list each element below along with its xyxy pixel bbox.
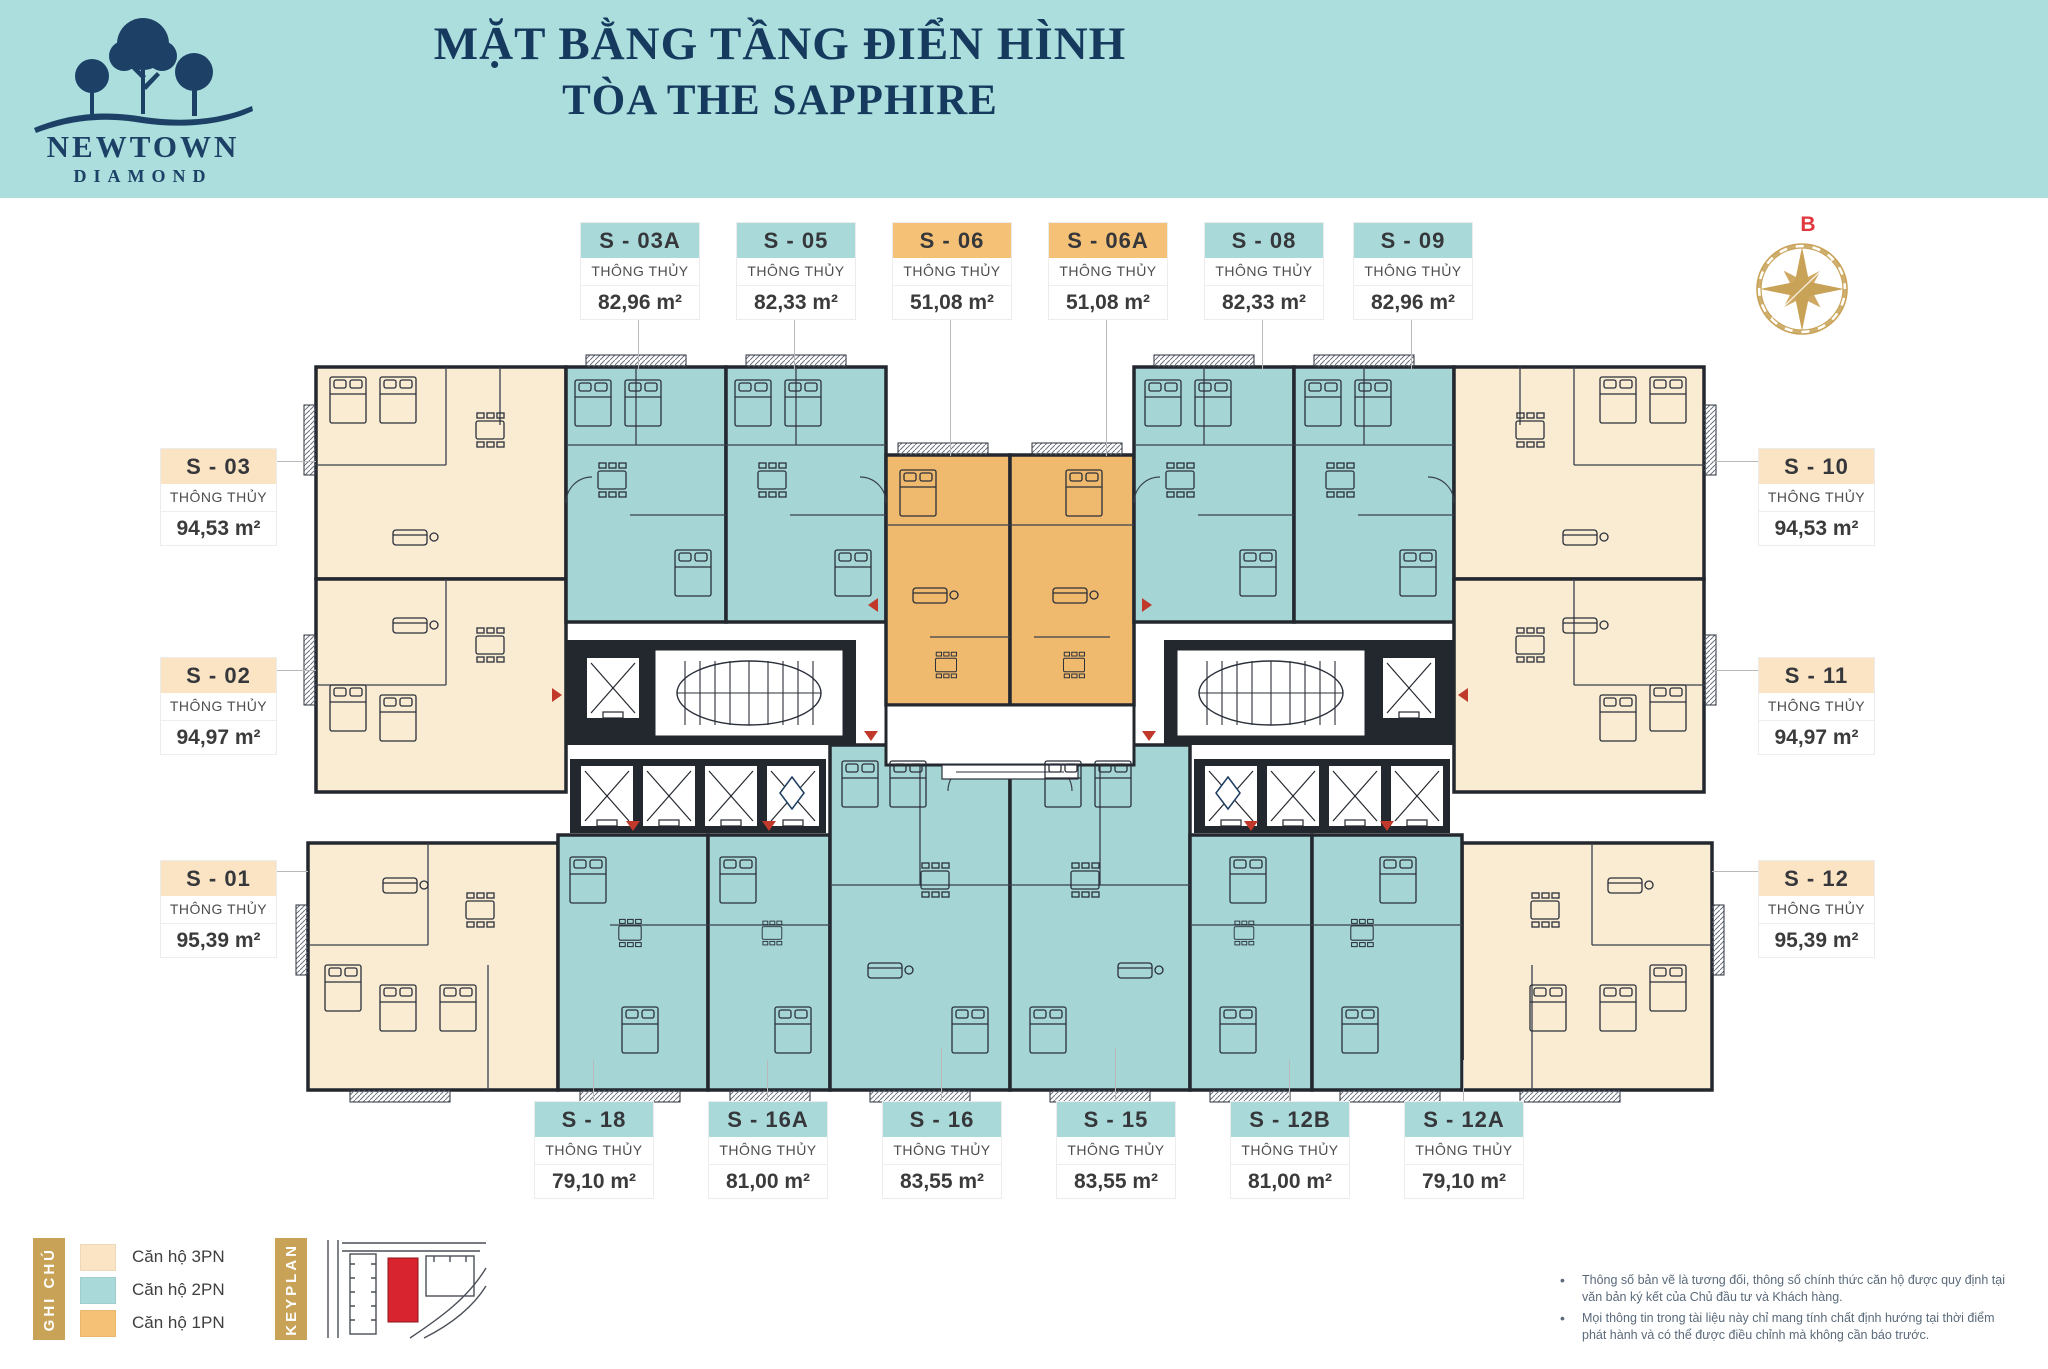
legend-title: GHI CHÚ [41, 1247, 58, 1331]
unit-area: 81,00 m² [1231, 1165, 1349, 1198]
unit-area-s05 [726, 367, 886, 622]
unit-area-s01 [308, 843, 558, 1090]
leader-line [1411, 320, 1412, 370]
title-line-2: TÒA THE SAPPHIRE [430, 74, 1130, 128]
legend-label-1pn: Căn hộ 1PN [132, 1313, 225, 1333]
unit-spec-label: THÔNG THỦY [1354, 258, 1472, 286]
legend-swatch-3pn [80, 1244, 116, 1271]
unit-id: S - 12B [1231, 1102, 1349, 1137]
unit-label-card: S - 03A THÔNG THỦY 82,96 m² [580, 222, 700, 320]
unit-id: S - 03 [161, 449, 276, 484]
unit-spec-label: THÔNG THỦY [161, 693, 276, 721]
keyplan-title-bar: KEYPLAN [275, 1238, 307, 1340]
keyplan-map [318, 1238, 490, 1340]
trees-icon [34, 18, 253, 133]
disclaimer-text-1: Thông số bản vẽ là tương đối, thông số c… [1582, 1272, 2012, 1306]
unit-area-s06 [886, 455, 1010, 705]
unit-spec-label: THÔNG THỦY [1759, 484, 1874, 512]
compass-north-label: B [1800, 213, 1815, 236]
unit-id: S - 12 [1759, 861, 1874, 896]
unit-id: S - 12A [1405, 1102, 1523, 1137]
bullet-icon: • [1560, 1272, 1582, 1306]
unit-label-card: S - 06 THÔNG THỦY 51,08 m² [892, 222, 1012, 320]
legend-swatch-1pn [80, 1310, 116, 1337]
unit-id: S - 05 [737, 223, 855, 258]
unit-area: 79,10 m² [535, 1165, 653, 1198]
bullet-icon: • [1560, 1310, 1582, 1344]
unit-area-s12 [1462, 843, 1712, 1090]
leader-line [1115, 1048, 1116, 1101]
left-core [566, 640, 856, 745]
unit-area: 94,53 m² [1759, 512, 1874, 545]
poster: NEWTOWN DIAMOND MẶT BẰNG TẦNG ĐIỂN HÌNH … [0, 0, 2048, 1369]
unit-id: S - 11 [1759, 658, 1874, 693]
legend-item-1pn: Căn hộ 1PN [80, 1310, 225, 1336]
disclaimer: • Thông số bản vẽ là tương đối, thông số… [1560, 1272, 2012, 1348]
unit-label-card: S - 02 THÔNG THỦY 94,97 m² [160, 657, 277, 755]
leader-line [1289, 1060, 1290, 1101]
unit-area: 51,08 m² [893, 286, 1011, 319]
unit-spec-label: THÔNG THỦY [1057, 1137, 1175, 1165]
unit-id: S - 15 [1057, 1102, 1175, 1137]
unit-id: S - 09 [1354, 223, 1472, 258]
unit-area: 82,96 m² [1354, 286, 1472, 319]
legend-swatch-2pn [80, 1277, 116, 1304]
unit-label-card: S - 03 THÔNG THỦY 94,53 m² [160, 448, 277, 546]
floor-plan [230, 265, 1790, 1115]
unit-area: 81,00 m² [709, 1165, 827, 1198]
unit-area-s06a [1010, 455, 1134, 705]
unit-area: 94,53 m² [161, 512, 276, 545]
right-core [1164, 640, 1454, 745]
unit-spec-label: THÔNG THỦY [737, 258, 855, 286]
unit-spec-label: THÔNG THỦY [161, 484, 276, 512]
unit-area-s08 [1134, 367, 1294, 622]
unit-label-card: S - 12 THÔNG THỦY 95,39 m² [1758, 860, 1875, 958]
unit-label-card: S - 12B THÔNG THỦY 81,00 m² [1230, 1101, 1350, 1199]
unit-id: S - 08 [1205, 223, 1323, 258]
unit-spec-label: THÔNG THỦY [535, 1137, 653, 1165]
leader-line [1106, 320, 1107, 456]
unit-area-s12a [1312, 835, 1462, 1090]
unit-label-card: S - 15 THÔNG THỦY 83,55 m² [1056, 1101, 1176, 1199]
unit-id: S - 18 [535, 1102, 653, 1137]
unit-label-card: S - 16 THÔNG THỦY 83,55 m² [882, 1101, 1002, 1199]
leader-line [638, 320, 639, 370]
unit-area-s16a [708, 835, 830, 1090]
unit-area: 83,55 m² [1057, 1165, 1175, 1198]
unit-id: S - 10 [1759, 449, 1874, 484]
brand-subname: DIAMOND [74, 166, 213, 186]
unit-label-card: S - 18 THÔNG THỦY 79,10 m² [534, 1101, 654, 1199]
unit-label-card: S - 12A THÔNG THỦY 79,10 m² [1404, 1101, 1524, 1199]
unit-label-card: S - 09 THÔNG THỦY 82,96 m² [1353, 222, 1473, 320]
leader-line [275, 670, 316, 671]
brand-logo: NEWTOWN DIAMOND [18, 4, 268, 192]
unit-area-s03a [566, 367, 726, 622]
unit-label-card: S - 11 THÔNG THỦY 94,97 m² [1758, 657, 1875, 755]
unit-area-s10 [1454, 367, 1704, 579]
unit-spec-label: THÔNG THỦY [893, 258, 1011, 286]
keyplan-highlighted-tower [388, 1258, 418, 1322]
unit-area: 51,08 m² [1049, 286, 1167, 319]
unit-id: S - 16 [883, 1102, 1001, 1137]
leader-line [275, 461, 316, 462]
unit-id: S - 16A [709, 1102, 827, 1137]
leader-line [941, 1048, 942, 1101]
unit-area: 82,33 m² [1205, 286, 1323, 319]
unit-id: S - 06A [1049, 223, 1167, 258]
unit-area: 94,97 m² [1759, 721, 1874, 754]
leader-line [593, 1060, 594, 1101]
unit-spec-label: THÔNG THỦY [1205, 258, 1323, 286]
unit-id: S - 01 [161, 861, 276, 896]
unit-label-card: S - 05 THÔNG THỦY 82,33 m² [736, 222, 856, 320]
unit-area: 95,39 m² [161, 924, 276, 957]
unit-label-card: S - 16A THÔNG THỦY 81,00 m² [708, 1101, 828, 1199]
leader-line [275, 871, 308, 872]
leader-line [950, 320, 951, 456]
unit-spec-label: THÔNG THỦY [161, 896, 276, 924]
legend-label-2pn: Căn hộ 2PN [132, 1280, 225, 1300]
disclaimer-item: • Thông số bản vẽ là tương đối, thông số… [1560, 1272, 2012, 1306]
page-title: MẶT BẰNG TẦNG ĐIỂN HÌNH TÒA THE SAPPHIRE [430, 16, 1130, 128]
leader-line [767, 1060, 768, 1101]
legend-title-bar: GHI CHÚ [33, 1238, 65, 1340]
leader-line [794, 320, 795, 370]
unit-area: 79,10 m² [1405, 1165, 1523, 1198]
unit-spec-label: THÔNG THỦY [709, 1137, 827, 1165]
disclaimer-text-2: Mọi thông tin trong tài liệu này chỉ man… [1582, 1310, 2012, 1344]
keyplan-title: KEYPLAN [283, 1243, 300, 1336]
legend-label-3pn: Căn hộ 3PN [132, 1247, 225, 1267]
disclaimer-item: • Mọi thông tin trong tài liệu này chỉ m… [1560, 1310, 2012, 1344]
unit-area-s12b [1190, 835, 1312, 1090]
unit-spec-label: THÔNG THỦY [883, 1137, 1001, 1165]
unit-label-card: S - 10 THÔNG THỦY 94,53 m² [1758, 448, 1875, 546]
unit-area-s03 [316, 367, 566, 579]
unit-area: 82,96 m² [581, 286, 699, 319]
unit-spec-label: THÔNG THỦY [581, 258, 699, 286]
unit-label-card: S - 06A THÔNG THỦY 51,08 m² [1048, 222, 1168, 320]
unit-label-card: S - 01 THÔNG THỦY 95,39 m² [160, 860, 277, 958]
brand-name: NEWTOWN [47, 129, 240, 164]
unit-spec-label: THÔNG THỦY [1759, 896, 1874, 924]
leader-line [1712, 670, 1758, 671]
legend-item-2pn: Căn hộ 2PN [80, 1277, 225, 1303]
unit-spec-label: THÔNG THỦY [1231, 1137, 1349, 1165]
unit-area: 83,55 m² [883, 1165, 1001, 1198]
title-line-1: MẶT BẰNG TẦNG ĐIỂN HÌNH [430, 16, 1130, 72]
leader-line [1712, 461, 1758, 462]
unit-spec-label: THÔNG THỦY [1759, 693, 1874, 721]
unit-area-s09 [1294, 367, 1454, 622]
unit-area-s18 [558, 835, 708, 1090]
unit-id: S - 06 [893, 223, 1011, 258]
unit-label-card: S - 08 THÔNG THỦY 82,33 m² [1204, 222, 1324, 320]
unit-area: 82,33 m² [737, 286, 855, 319]
unit-area: 94,97 m² [161, 721, 276, 754]
leader-line [1262, 320, 1263, 370]
unit-id: S - 03A [581, 223, 699, 258]
leader-line [1463, 1060, 1464, 1101]
legend-item-3pn: Căn hộ 3PN [80, 1244, 225, 1270]
unit-id: S - 02 [161, 658, 276, 693]
unit-area: 95,39 m² [1759, 924, 1874, 957]
unit-spec-label: THÔNG THỦY [1405, 1137, 1523, 1165]
unit-spec-label: THÔNG THỦY [1049, 258, 1167, 286]
leader-line [1712, 871, 1758, 872]
